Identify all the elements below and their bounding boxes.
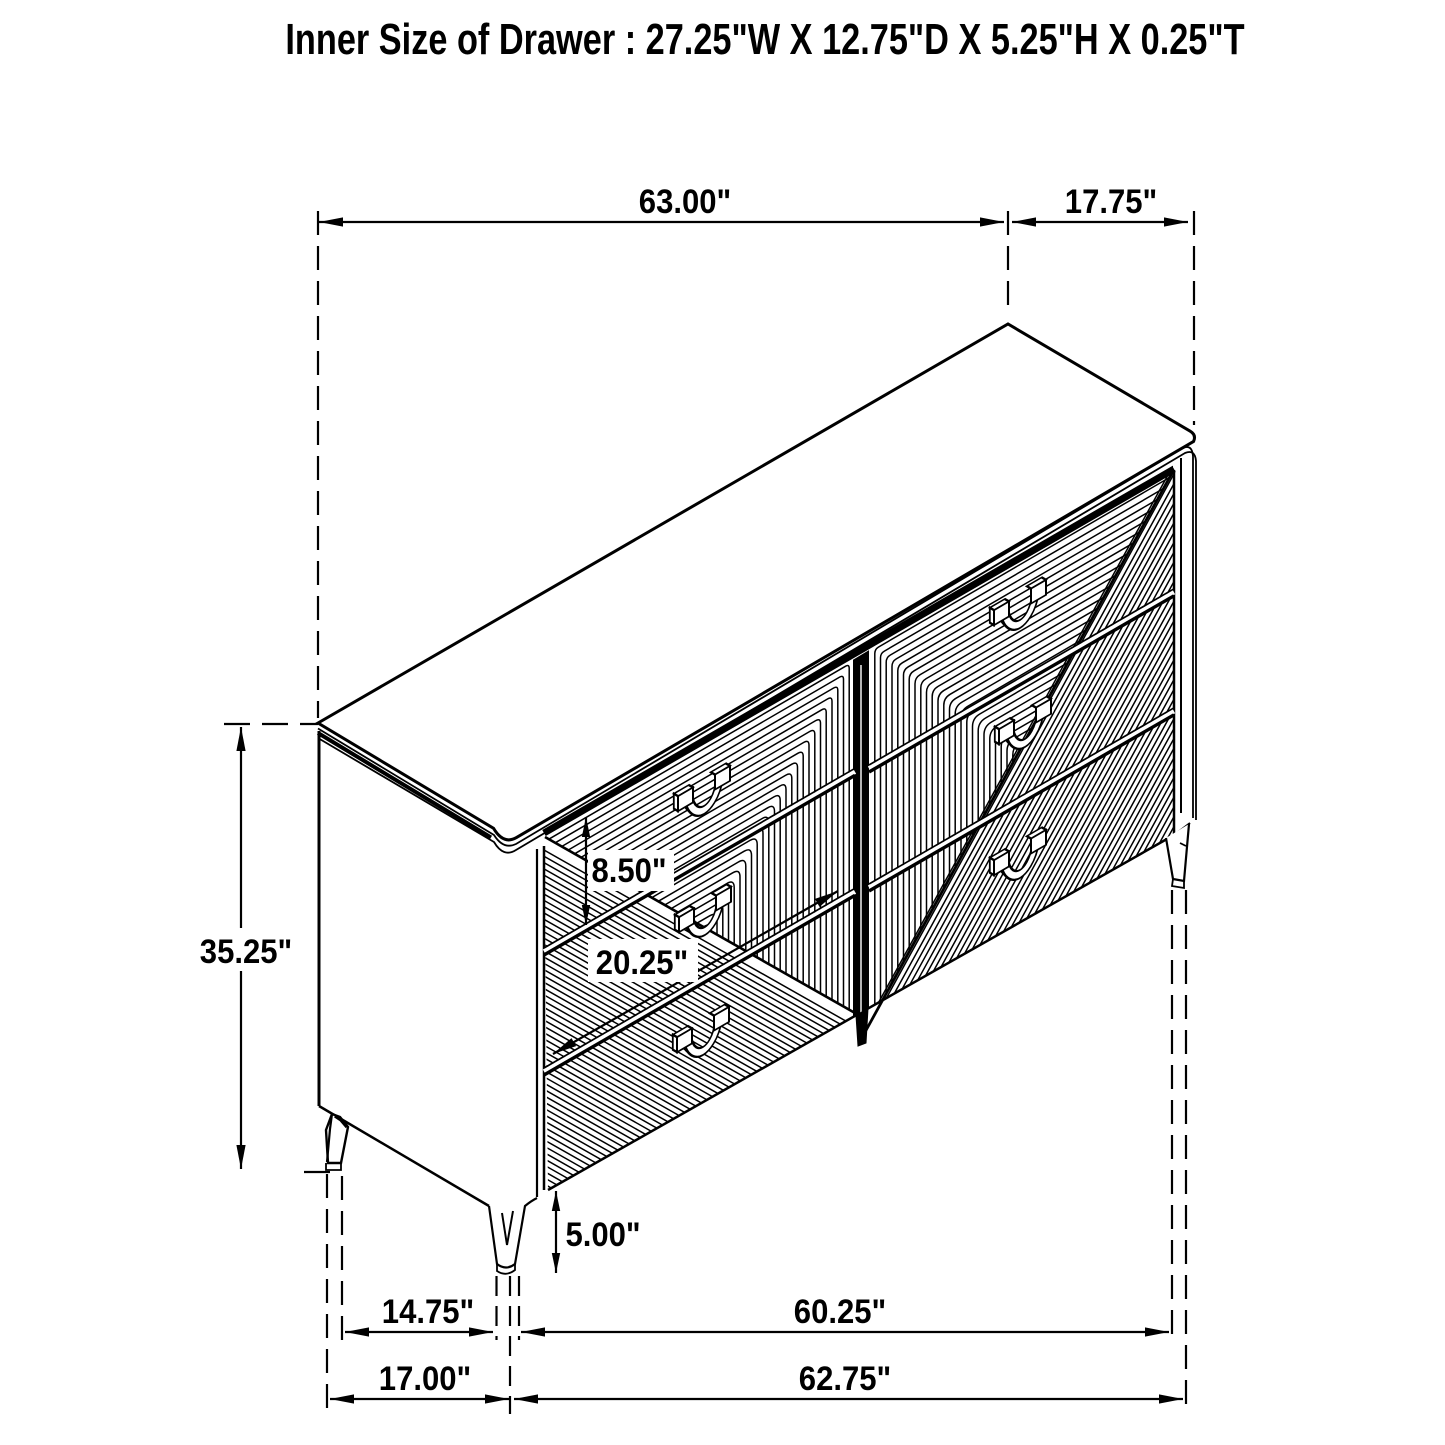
svg-text:60.25": 60.25" bbox=[794, 1291, 886, 1330]
svg-text:63.00": 63.00" bbox=[639, 181, 731, 220]
svg-text:62.75": 62.75" bbox=[799, 1358, 891, 1397]
svg-text:17.75": 17.75" bbox=[1065, 181, 1157, 220]
svg-text:8.50": 8.50" bbox=[591, 850, 666, 889]
svg-text:Inner Size of Drawer : 27.25"W: Inner Size of Drawer : 27.25"W X 12.75"D… bbox=[285, 15, 1244, 64]
svg-text:35.25": 35.25" bbox=[200, 931, 292, 970]
svg-text:14.75": 14.75" bbox=[382, 1291, 474, 1330]
svg-text:17.00": 17.00" bbox=[379, 1358, 471, 1397]
svg-text:5.00": 5.00" bbox=[565, 1214, 640, 1253]
svg-text:20.25": 20.25" bbox=[596, 942, 688, 981]
